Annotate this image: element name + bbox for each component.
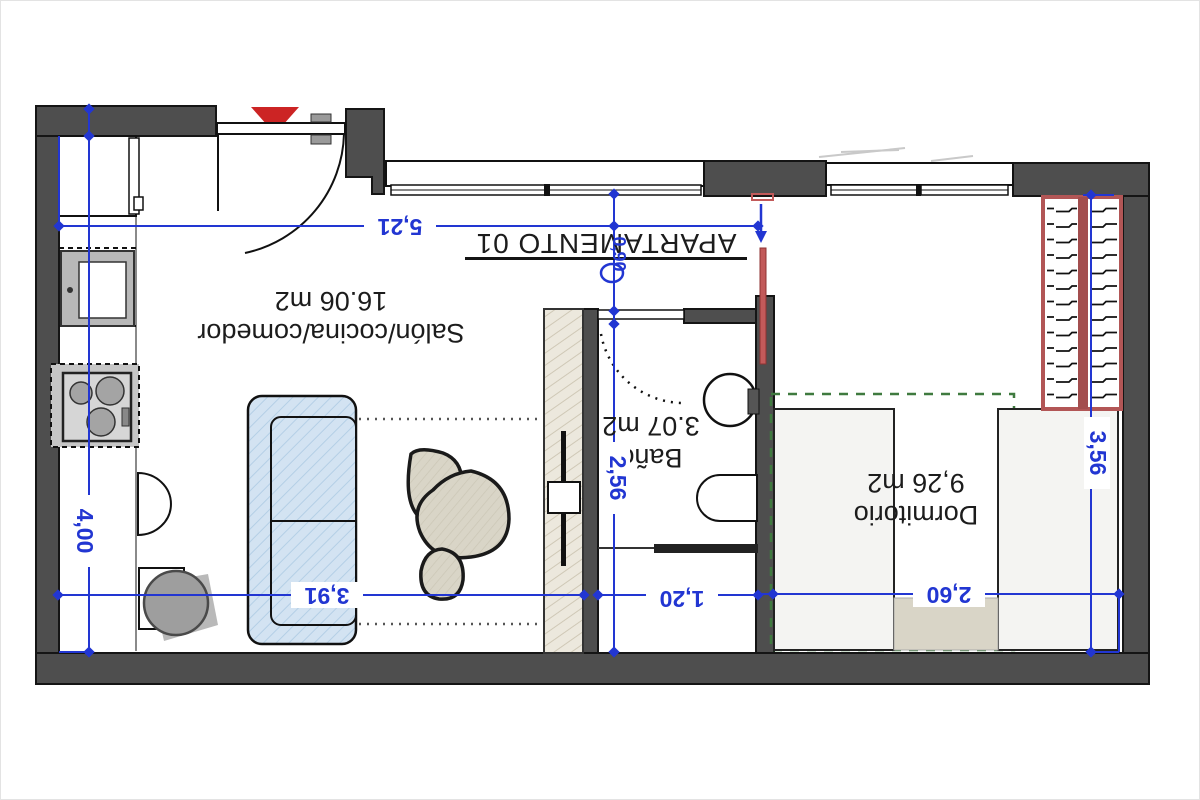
stool [139,568,218,641]
stove-control [122,408,129,426]
entry-door [217,107,345,253]
kitchen [51,136,218,651]
window-mullion [544,184,550,196]
side-table [138,473,171,535]
room-label-bedroom: Dormitorio 9,26 m2 [841,468,991,528]
wall-right [1123,196,1149,653]
dim-label-salon-inner-width: 3,91 [291,582,363,608]
wall-top-middle [704,161,826,196]
entry-door-leaf [217,123,345,134]
bath-sink [697,475,757,521]
dim-label-bedroom-depth: 3,56 [1084,417,1110,489]
dim-label-bath-depth: 2,56 [604,442,630,514]
room-area: 16.06 m2 [275,284,388,316]
coffee-table [408,450,509,599]
tv-unit [544,309,583,653]
wall-top-entry [36,106,216,136]
bath-bottom-partition [598,544,758,553]
dim-label-salon-depth: 4,00 [71,495,97,567]
floor-plan-drawing [1,1,1200,800]
room-area: 3.07 m2 [602,410,700,442]
wardrobe-hangers [1047,201,1077,405]
wall-pillar [346,109,384,194]
dim-label-bath-width: 1,20 [646,585,718,611]
blue-down-arrow-icon [755,231,767,243]
door-hinge [311,135,331,144]
wall-bath-top [684,309,758,323]
kitchen-closet [59,136,143,216]
room-label-salon: Salón/cocina/comedor 16.06 m2 [166,284,496,348]
faucet-icon [67,287,73,293]
table-stone [421,549,463,599]
wardrobe-rail [1078,197,1088,409]
door-hinge [311,114,331,122]
toilet-tank [748,389,759,414]
room-name: Dormitorio [854,498,979,530]
wall-top-right [1013,163,1149,196]
dim-label-bedroom-width: 2,60 [913,581,985,607]
wardrobe [1043,197,1121,409]
wall-salon-bath [583,309,598,653]
apartment-title: APARTAMENTO 01 [456,228,756,258]
title-underline [465,257,747,260]
kitchen-stove [51,364,139,447]
salon-window [386,161,704,196]
closet-handle [134,197,143,210]
tv-mount [548,482,580,513]
room-name: Salón/cocina/comedor [197,316,464,348]
room-area: 9,26 m2 [867,466,965,498]
radiator [760,248,766,364]
kitchen-sink [59,248,136,326]
dim-label-hall-width: 0,90 [607,222,629,286]
entry-door-swing-arc [245,134,344,253]
floor-plan: APARTAMENTO 01 Salón/cocina/comedor 16.0… [0,0,1200,800]
pencil-scribbles [819,148,973,161]
burner [87,408,115,436]
wardrobe-hangers [1089,201,1117,405]
window-mullion [916,184,921,196]
dim-label-salon-width: 5,21 [364,213,436,239]
wall-bottom [36,653,1149,684]
bedroom-window [826,163,1013,196]
burner [96,377,124,405]
